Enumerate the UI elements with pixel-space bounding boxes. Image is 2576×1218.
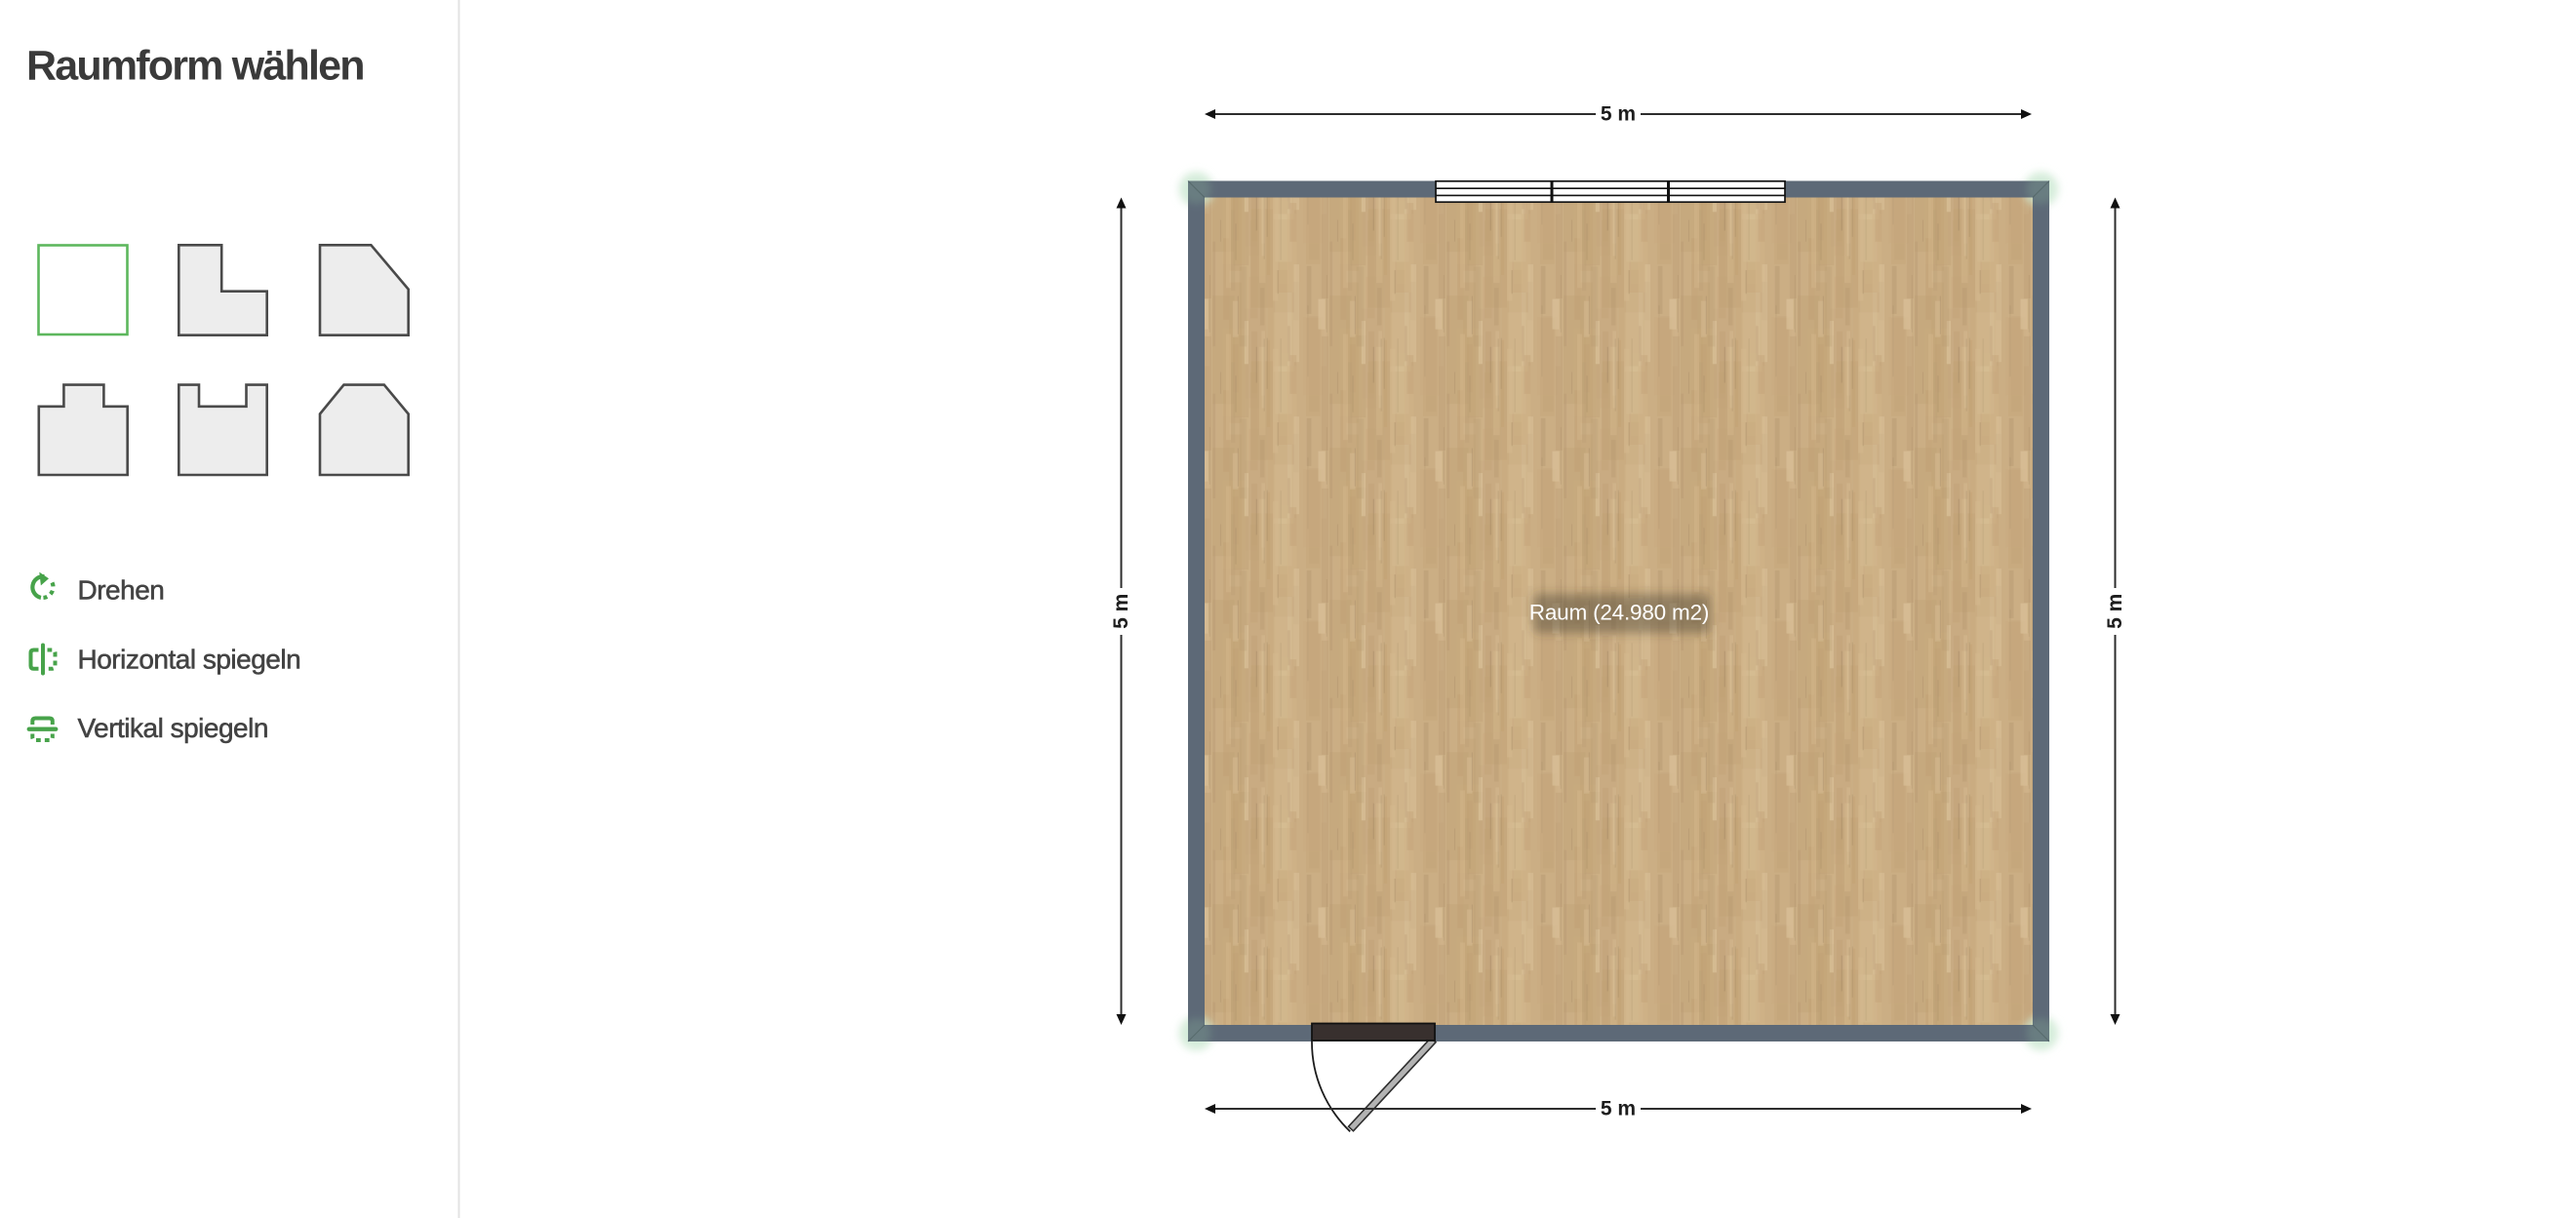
svg-text:Raumform wählen: Raumform wählen bbox=[26, 43, 364, 90]
svg-text:Horizontal spiegeln: Horizontal spiegeln bbox=[78, 645, 301, 675]
svg-text:5 m: 5 m bbox=[2104, 594, 2126, 629]
svg-text:5 m: 5 m bbox=[1110, 594, 1132, 629]
svg-text:5 m: 5 m bbox=[1601, 1098, 1636, 1120]
svg-text:Vertikal spiegeln: Vertikal spiegeln bbox=[78, 713, 268, 743]
svg-text:5 m: 5 m bbox=[1601, 103, 1636, 126]
svg-text:Drehen: Drehen bbox=[78, 574, 165, 605]
svg-text:Raum (24.980 m2): Raum (24.980 m2) bbox=[1529, 601, 1709, 625]
